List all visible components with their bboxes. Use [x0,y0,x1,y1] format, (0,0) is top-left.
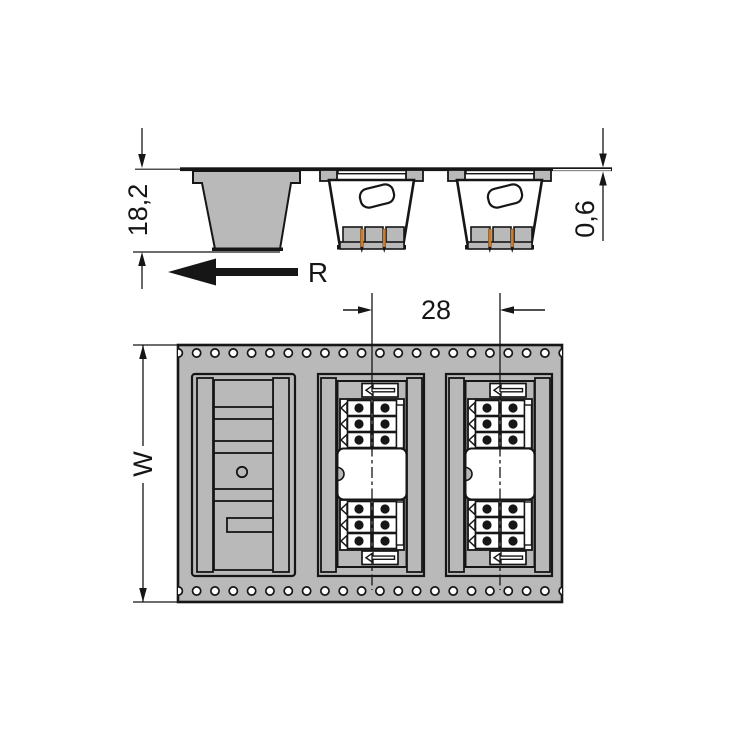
dim-tape-thickness-label: 0,6 [570,200,600,238]
empty-pocket-side [193,171,300,251]
dim-tape-thickness: 0,6 [570,128,607,241]
direction-arrow-r: R [168,257,328,288]
dim-pocket-pitch: 28 [343,295,545,325]
component-pocket-side-1 [320,170,423,253]
technical-drawing: 18,2 0,6 R [0,0,750,750]
top-view: 28 W [128,293,567,602]
side-view: 18,2 0,6 R [123,128,612,289]
connector-pocket-top-1 [318,293,424,590]
direction-label: R [308,257,328,288]
empty-pocket-top [192,374,295,576]
component-pocket-side-2 [448,170,551,253]
dim-pocket-pitch-label: 28 [421,295,451,325]
dim-tape-width-label: W [128,451,158,477]
dim-tape-width: W [128,345,180,602]
connector-pocket-top-2 [446,293,552,590]
drawing-svg: 18,2 0,6 R [0,0,750,750]
dim-pocket-depth-label: 18,2 [123,184,153,237]
